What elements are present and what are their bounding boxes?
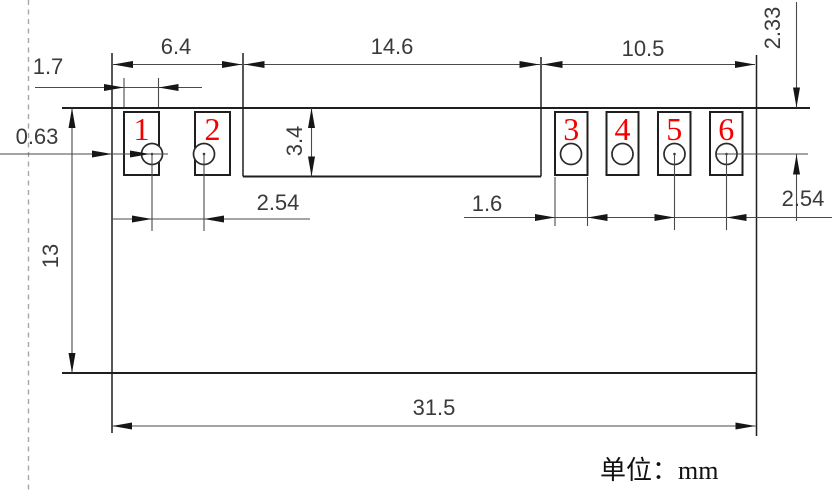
pad-5-number: 5 xyxy=(666,111,682,147)
dim-text-2-33: 2.33 xyxy=(760,7,785,50)
arrow-14-6-right xyxy=(520,61,540,68)
arrow-1-7-left xyxy=(104,84,124,91)
hole-3 xyxy=(561,144,582,165)
arrow-10-5-left xyxy=(543,61,563,68)
arrow-2-33-down xyxy=(793,88,800,108)
drawing-canvas: 1 2 3 4 5 6 xyxy=(0,0,836,490)
dim-text-1-6: 1.6 xyxy=(472,191,503,216)
arrow-2-54-left-a xyxy=(132,216,152,223)
dimension-lines xyxy=(35,2,832,426)
dim-text-0-63: 0.63 xyxy=(16,124,59,149)
hole-4 xyxy=(612,144,633,165)
arrow-10-5-right xyxy=(735,61,755,68)
arrow-14-6-left xyxy=(245,61,265,68)
pad-4-number: 4 xyxy=(615,111,631,147)
dim-text-2-54-right: 2.54 xyxy=(782,186,825,211)
dim-text-6-4: 6.4 xyxy=(161,34,192,59)
pad-1-number: 1 xyxy=(134,111,150,147)
arrow-2-33-up xyxy=(793,155,800,175)
dim-text-2-54-left: 2.54 xyxy=(257,190,300,215)
dimension-drawing-svg: 1 2 3 4 5 6 xyxy=(0,0,836,490)
pad-3-number: 3 xyxy=(563,111,579,147)
arrow-6-4-left xyxy=(113,61,133,68)
hole-center-dots xyxy=(151,153,728,156)
arrow-31-5-left xyxy=(112,423,132,430)
pad-2-number: 2 xyxy=(205,111,221,147)
arrow-31-5-right xyxy=(736,423,756,430)
pad-6-number: 6 xyxy=(718,111,734,147)
arrow-3-4-top xyxy=(308,108,315,128)
arrow-2-54-right-a xyxy=(655,214,675,221)
arrow-3-4-bottom xyxy=(308,157,315,177)
dim-text-13: 13 xyxy=(38,244,63,268)
dim-text-14-6: 14.6 xyxy=(371,34,414,59)
arrow-0-63-a xyxy=(92,151,112,158)
arrow-13-top xyxy=(69,108,76,128)
dim-text-31-5: 31.5 xyxy=(413,395,456,420)
extension-lines xyxy=(0,78,808,231)
dim-text-1-7: 1.7 xyxy=(33,54,64,79)
arrow-2-54-left-b xyxy=(204,216,224,223)
arrow-1-6-b xyxy=(588,214,608,221)
pads: 1 2 3 4 5 6 xyxy=(124,111,743,175)
dim-text-3-4: 3.4 xyxy=(282,126,307,157)
arrow-13-bottom xyxy=(69,353,76,373)
arrow-2-54-right-b xyxy=(727,214,747,221)
dim-text-10-5: 10.5 xyxy=(622,36,665,61)
unit-label: 单位：mm xyxy=(600,456,718,485)
recess-outline xyxy=(243,53,541,177)
arrow-1-7-right xyxy=(159,84,179,91)
dimension-texts: 6.4 14.6 10.5 1.7 0.63 2.33 3.4 13 2.54 … xyxy=(16,7,825,420)
arrow-1-6-a xyxy=(535,214,555,221)
arrow-6-4-right xyxy=(222,61,242,68)
pcb-body-outline xyxy=(62,53,810,436)
